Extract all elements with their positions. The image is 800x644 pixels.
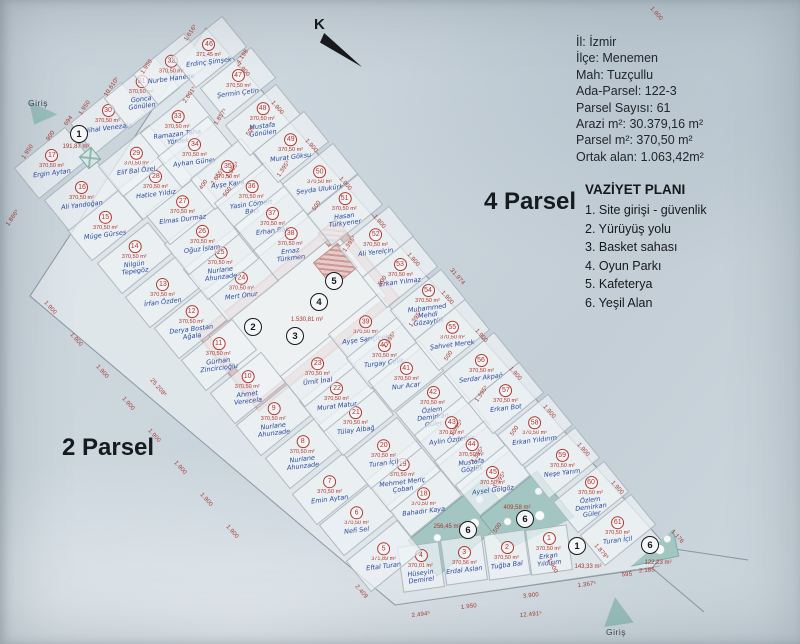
- common-area-value: 409,58 m²: [503, 505, 530, 511]
- parcel-number: 42: [427, 386, 440, 399]
- parcel-38-label: 38370,50 m²Ernaz Türkmen: [267, 227, 315, 262]
- dimension-label: 595: [621, 572, 632, 579]
- parcel-15-label: 15370,50 m²Müge Gürses: [84, 211, 127, 239]
- parcel-number: 16: [75, 181, 88, 194]
- parcel-23-label: 23370,50 m²Ümit İnal: [303, 357, 332, 385]
- parcel-2-label: 2370,50 m²Tuğba Bal: [491, 541, 523, 569]
- common-area-value: 191,87 m²: [62, 144, 89, 150]
- parcel-5-label: 5371,89 m²Eftal Turan: [366, 542, 401, 570]
- parcel-number: 15: [98, 211, 111, 224]
- common-facility-6[interactable]: 6: [459, 521, 477, 539]
- parcel-number: 46: [202, 38, 215, 51]
- parcel-number: 29: [129, 147, 142, 160]
- parcel-12-label: 12370,50 m²Derya Bostan Ağala: [168, 305, 216, 340]
- common-area-value: 143,33 m²: [574, 564, 601, 570]
- parcel-9-label: 9370,50 m²Nurlane Ahunzade: [250, 402, 298, 437]
- label-2-parsel: 2 Parsel: [62, 434, 154, 462]
- parcel-owner-name: Erkan Bot: [490, 403, 522, 414]
- parcel-number: 3: [457, 546, 470, 559]
- parcel-owner-name: Nefi Sel: [344, 525, 370, 535]
- common-facility-2[interactable]: 2: [244, 318, 262, 336]
- parcel-number: 60: [585, 476, 598, 489]
- parcel-number: 51: [339, 192, 352, 205]
- parcel-number: 53: [393, 258, 406, 271]
- parcel-number: 54: [422, 284, 435, 297]
- parcel-51-label: 51370,50 m²Hasan Türkyener: [321, 192, 369, 227]
- parcel-number: 59: [555, 449, 568, 462]
- info-line-mah: Mah: Tuzçullu: [576, 67, 704, 83]
- parcel-46-label: 46371,45 m²Erdinç Şimşek: [186, 38, 232, 66]
- legend-item-6: 6. Yeşil Alan: [585, 294, 707, 313]
- parcel-owner-name: Oğuz İslam: [184, 244, 221, 255]
- common-facility-1[interactable]: 1: [70, 125, 88, 143]
- parcel-number: 55: [445, 321, 458, 334]
- parcel-10-label: 10370,50 m²Ahmet Verecela: [224, 370, 272, 405]
- parcel-number: 6: [350, 506, 363, 519]
- parcel-owner-name: Elif Bal Özel: [116, 166, 155, 178]
- common-facility-4[interactable]: 4: [310, 293, 328, 311]
- north-indicator: K: [312, 16, 372, 78]
- parcel-owner-name: Eftal Turan: [366, 561, 402, 572]
- parcel-number: 37: [265, 207, 278, 220]
- parcel-owner-name: Tuğba Bal: [491, 560, 524, 571]
- parcel-number: 1: [543, 532, 556, 545]
- common-facility-5[interactable]: 5: [325, 272, 343, 290]
- dimension-label: 2.185: [639, 567, 655, 574]
- parcel-owner-name: Turan İçil: [369, 458, 399, 469]
- legend-item-1: 1. Site girişi - güvenlik: [585, 201, 707, 220]
- legend-item-5: 5. Kafeterya: [585, 275, 707, 294]
- common-facility-6[interactable]: 6: [641, 536, 659, 554]
- parcel-3[interactable]: 3370,56 m²Erdal Aslan: [440, 534, 488, 585]
- common-area-value: 1.530,81 m²: [291, 317, 323, 323]
- info-line-arazi: Arazi m²: 30.379,16 m²: [576, 116, 704, 132]
- parcel-number: 2: [500, 541, 513, 554]
- vaziyet-plani-legend: VAZİYET PLANI 1. Site girişi - güvenlik …: [585, 182, 707, 313]
- parcel-number: 20: [377, 439, 390, 452]
- legend-title: VAZİYET PLANI: [585, 182, 707, 197]
- parcel-number: 52: [369, 228, 382, 241]
- parcel-49-label: 49370,50 m²Murat Göksu: [270, 133, 311, 161]
- parcel-owner-name: Turan İçil: [603, 535, 633, 546]
- parcel-14-label: 14370,50 m²Nilgün Tepegöz: [111, 240, 159, 275]
- parcel-3-label: 3370,56 m²Erdal Aslan: [446, 546, 483, 574]
- info-line-il: İl: İzmir: [576, 34, 704, 50]
- parcel-17-label: 17370,50 m²Ergin Aytan: [33, 149, 71, 177]
- parcel-owner-name: İrfan Özden: [144, 297, 182, 309]
- parcel-number: 13: [156, 278, 169, 291]
- info-line-ilce: İlçe: Menemen: [576, 50, 704, 66]
- common-facility-1[interactable]: 1: [568, 537, 586, 555]
- parcel-number: 58: [528, 416, 541, 429]
- parcel-55-label: 55370,50 m²Şahvet Merek: [430, 321, 475, 349]
- parcel-2[interactable]: 2370,50 m²Tuğba Bal: [483, 529, 531, 580]
- north-letter: K: [314, 16, 372, 33]
- info-line-parsel-m2: Parsel m²: 370,50 m²: [576, 132, 704, 148]
- parcel-owner-name: Erdal Aslan: [445, 565, 482, 576]
- parcel-number: 14: [129, 240, 142, 253]
- parcel-number: 23: [311, 357, 324, 370]
- north-arrow-icon: [320, 33, 362, 67]
- parcel-45-label: 45370,50 m²Aysel Gölgöz: [472, 466, 514, 494]
- parcel-59-label: 59370,50 m²Neşe Yarım: [544, 449, 580, 477]
- label-4-parsel: 4 Parsel: [484, 188, 576, 216]
- parcel-number: 39: [359, 315, 372, 328]
- parcel-number: 41: [399, 362, 412, 375]
- legend-item-3: 3. Basket sahası: [585, 238, 707, 257]
- info-line-parsel-sayisi: Parsel Sayısı: 61: [576, 100, 704, 116]
- entrance-label-bottom: Giriş: [606, 627, 626, 637]
- parcel-number: 61: [611, 516, 624, 529]
- parcel-number: 10: [242, 370, 255, 383]
- parcel-20-label: 20370,50 m²Turan İçil: [369, 439, 398, 467]
- info-line-ortak-alan: Ortak alan: 1.063,42m²: [576, 149, 704, 165]
- parcel-29-label: 29370,50 m²Elif Bal Özel: [117, 147, 156, 175]
- parcel-52-label: 52370,50 m²Ali Yerelçin: [358, 228, 393, 256]
- info-line-ada-parsel: Ada-Parsel: 122-3: [576, 83, 704, 99]
- parcel-57-label: 57370,50 m²Erkan Bot: [490, 384, 522, 412]
- entrance-label-top: Giriş: [28, 98, 48, 108]
- info-box: İl: İzmir İlçe: Menemen Mah: Tuzçullu Ad…: [576, 34, 704, 165]
- parcel-47-label: 47370,50 m²Şermin Çetin: [217, 69, 259, 97]
- common-area-value: 122,23 m²: [644, 560, 671, 566]
- common-area-value: 256,45 m²: [433, 524, 460, 530]
- parcel-61-label: 61370,50 m²Turan İçil: [603, 516, 632, 544]
- parcel-number: 26: [195, 225, 208, 238]
- parcel-owner-name: Tülay Albağ: [337, 425, 375, 437]
- parcel-13-label: 13370,50 m²İrfan Özden: [144, 278, 182, 306]
- site-plan-photo: Giriş Giriş 1370,50 m²Erkan Yıldırım2370…: [0, 0, 800, 644]
- parcel-number: 33: [172, 110, 185, 123]
- parcel-owner-name: Hüseyin Demirel: [400, 568, 441, 587]
- parcel-number: 49: [284, 133, 297, 146]
- parcel-owner-name: Ümit İnal: [303, 376, 333, 387]
- parcel-number: 12: [186, 305, 199, 318]
- parcel-owner-name: Mert Onur: [224, 291, 258, 302]
- parcel-number: 48: [257, 102, 270, 115]
- parcel-56-label: 56370,50 m²Serdar Akpağ: [459, 354, 503, 382]
- parcel-number: 56: [474, 354, 487, 367]
- parcel-number: 17: [45, 149, 58, 162]
- parcel-number: 27: [176, 195, 189, 208]
- parcel-owner-name: Ergin Aytan: [33, 168, 71, 180]
- parcel-number: 7: [323, 475, 336, 488]
- legend-item-4: 4. Oyun Parkı: [585, 257, 707, 276]
- parcel-16-label: 16370,50 m²Ali Yandoğan: [61, 181, 103, 209]
- parcel-6-label: 6370,50 m²Nefi Sel: [343, 506, 370, 534]
- parcel-number: 5: [377, 542, 390, 555]
- parcel-number: 34: [188, 138, 201, 151]
- parcel-7-label: 7370,50 m²Emin Aytan: [311, 475, 348, 503]
- parcel-11-label: 11370,50 m²Gürhan Zincircioğlu: [195, 337, 243, 372]
- parcel-number: 57: [499, 384, 512, 397]
- legend-item-2: 2. Yürüyüş yolu: [585, 220, 707, 239]
- parcel-number: 36: [246, 180, 259, 193]
- common-facility-6[interactable]: 6: [516, 510, 534, 528]
- parcel-number: 50: [313, 165, 326, 178]
- parcel-owner-name: Emin Aytan: [311, 494, 349, 506]
- parcel-number: 8: [297, 435, 310, 448]
- parcel-number: 38: [285, 227, 298, 240]
- parcel-8-label: 8370,50 m²Nurlane Ahunzade: [279, 435, 327, 470]
- common-facility-3[interactable]: 3: [286, 327, 304, 345]
